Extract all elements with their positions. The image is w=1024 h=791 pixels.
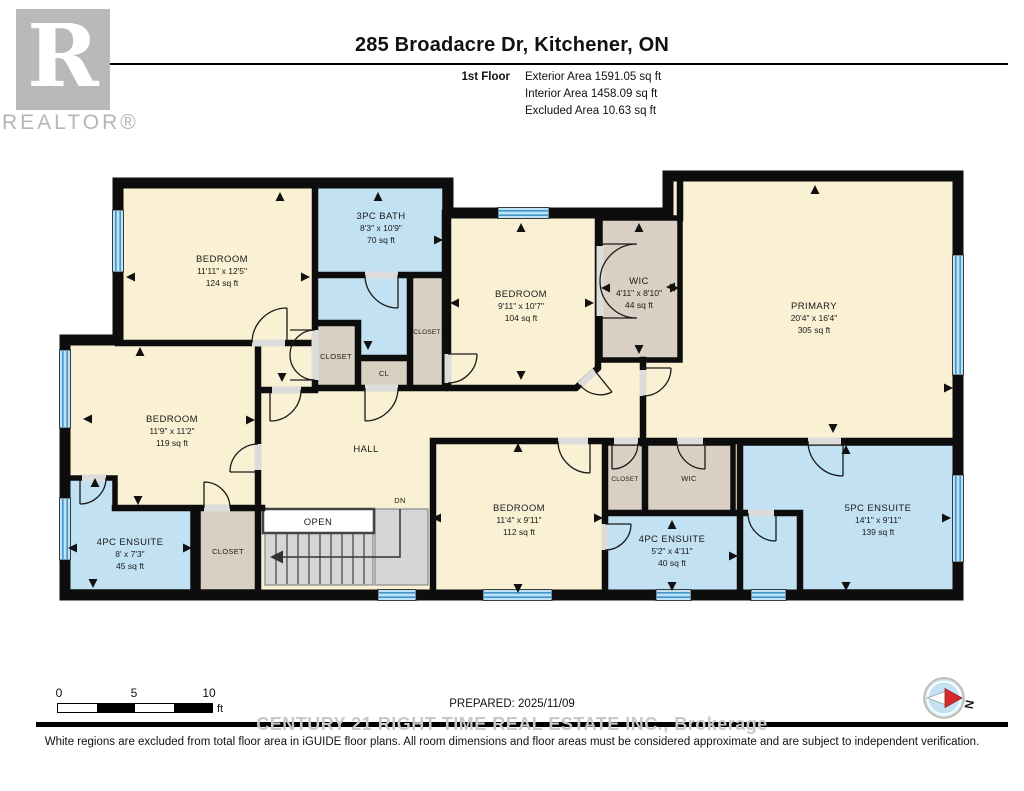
window (953, 255, 964, 375)
room-name: 3PC BATH (357, 211, 406, 222)
window (378, 590, 416, 601)
window (113, 210, 124, 272)
room-area: 119 sq ft (156, 438, 189, 448)
brokerage-watermark: CENTURY 21 RIGHT TIME REAL ESTATE INC., … (0, 714, 1024, 735)
room-dims: 11'4" x 9'11" (496, 515, 541, 525)
room-name: BEDROOM (146, 414, 198, 425)
window (656, 590, 691, 601)
room-area: 44 sq ft (625, 300, 654, 310)
room-name: WIC (629, 276, 649, 287)
room-area: 139 sq ft (862, 527, 895, 537)
window (953, 475, 964, 562)
room-area: 40 sq ft (658, 558, 687, 568)
closet-left-label: CLOSET (212, 547, 244, 556)
room-dims: 8' x 7'3" (115, 549, 144, 559)
room-name: BEDROOM (196, 254, 248, 265)
window (60, 498, 71, 560)
room-dims: 20'4" x 16'4" (791, 313, 838, 323)
compass-icon: N (920, 674, 982, 722)
room-dims: 9'11" x 10'7" (498, 301, 544, 311)
room-dims: 5'2" x 4'11" (651, 546, 692, 556)
hall-label: HALL (353, 444, 378, 455)
room-area: 45 sq ft (116, 561, 145, 571)
closet-upper-label: CLOSET (320, 352, 352, 361)
disclaimer-text: White regions are excluded from total fl… (0, 736, 1024, 748)
window (751, 590, 786, 601)
room-area: 124 sq ft (206, 278, 239, 288)
room-dims: 11'9" x 11'2" (149, 426, 194, 436)
room-dims: 4'11" x 8'10" (616, 288, 662, 298)
room-name: 5PC ENSUITE (845, 503, 912, 514)
room-dims: 11'11" x 12'5" (197, 266, 247, 276)
room-name: PRIMARY (791, 301, 837, 312)
closet-upper-right-label: CLOSET (413, 329, 440, 336)
floor-plan: BEDROOM 11'11" x 12'5" 124 sq ft 3PC BAT… (0, 0, 1024, 791)
room-dims: 8'3" x 10'9" (360, 223, 402, 233)
stair-landing (375, 509, 428, 585)
room-name: 4PC ENSUITE (97, 537, 164, 548)
window (60, 350, 71, 428)
room-name: BEDROOM (493, 503, 545, 514)
compass-north-label: N (962, 699, 977, 710)
prepared-date: PREPARED: 2025/11/09 (0, 698, 1024, 710)
open-label: OPEN (304, 517, 333, 528)
room-area: 70 sq ft (367, 235, 396, 245)
window (498, 208, 549, 219)
wic-lower-label: WIC (681, 474, 697, 483)
closet-bottom-right-label: CLOSET (611, 476, 638, 483)
room-name: BEDROOM (495, 289, 547, 300)
dn-label: DN (394, 496, 405, 505)
room-area: 104 sq ft (505, 313, 538, 323)
room-name: 4PC ENSUITE (639, 534, 706, 545)
cl-label: CL (379, 369, 389, 378)
room-area: 112 sq ft (503, 527, 536, 537)
room-area: 305 sq ft (798, 325, 831, 335)
room-dims: 14'1" x 9'11" (855, 515, 901, 525)
room-water-closet-floor (740, 513, 800, 593)
